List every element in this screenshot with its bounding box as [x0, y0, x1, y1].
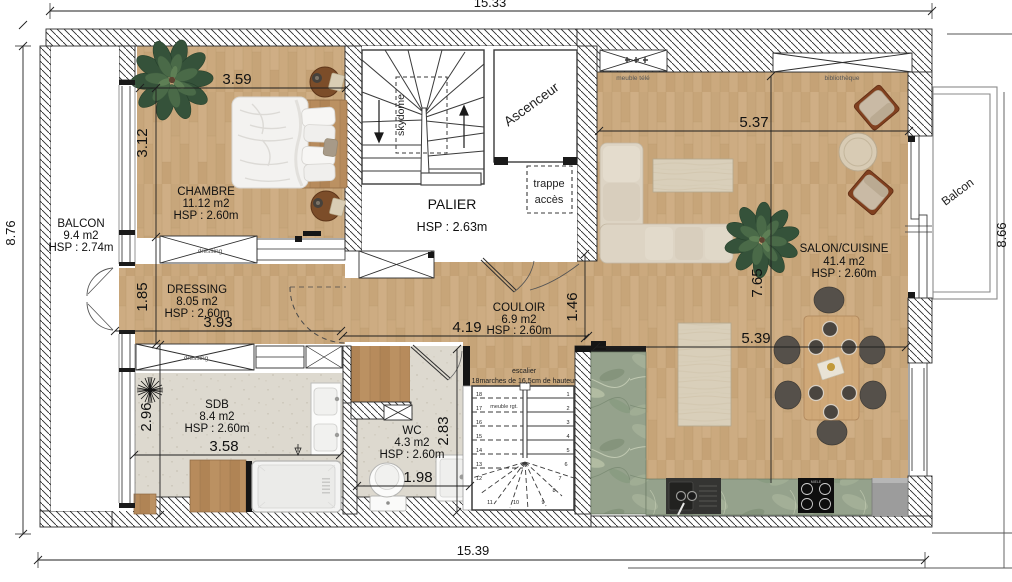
svg-text:15.33: 15.33 — [474, 0, 507, 10]
svg-text:8.66: 8.66 — [994, 222, 1009, 247]
svg-text:11.12 m2: 11.12 m2 — [182, 198, 229, 210]
svg-text:2.96: 2.96 — [138, 402, 155, 431]
svg-text:1: 1 — [566, 392, 569, 398]
svg-text:CHAMBRE: CHAMBRE — [177, 186, 235, 198]
svg-text:meuble rgt.: meuble rgt. — [490, 404, 518, 410]
svg-text:BALCON: BALCON — [57, 218, 104, 230]
svg-text:9.4 m2: 9.4 m2 — [63, 230, 98, 242]
svg-text:12: 12 — [476, 476, 482, 482]
svg-text:3.59: 3.59 — [222, 71, 251, 88]
svg-text:escalier: escalier — [512, 368, 537, 375]
svg-text:15.39: 15.39 — [457, 543, 490, 558]
svg-text:3.58: 3.58 — [209, 438, 238, 455]
svg-text:HSP : 2.60m: HSP : 2.60m — [185, 423, 250, 435]
svg-text:dressing: dressing — [198, 248, 223, 255]
svg-text:10: 10 — [513, 500, 519, 506]
svg-text:accès: accès — [535, 194, 564, 206]
svg-text:HSP : 2.60m: HSP : 2.60m — [165, 308, 230, 320]
svg-text:5.37: 5.37 — [739, 114, 768, 131]
svg-text:15: 15 — [476, 434, 482, 440]
svg-text:8.76: 8.76 — [3, 220, 18, 245]
svg-text:4.3 m2: 4.3 m2 — [394, 437, 429, 449]
svg-text:HSP : 2.60m: HSP : 2.60m — [380, 449, 445, 461]
svg-text:7.65: 7.65 — [749, 268, 766, 297]
svg-text:1.85: 1.85 — [134, 282, 151, 311]
svg-text:dressing: dressing — [184, 355, 209, 362]
svg-text:4.19: 4.19 — [452, 319, 481, 336]
svg-text:9: 9 — [541, 500, 544, 506]
svg-text:3.12: 3.12 — [134, 128, 151, 157]
svg-text:41.4 m2: 41.4 m2 — [823, 256, 865, 268]
svg-text:bibliothèque: bibliothèque — [824, 75, 859, 82]
svg-text:HSP : 2.60m: HSP : 2.60m — [812, 268, 877, 280]
svg-text:18marches de 16,5cm de hauteur: 18marches de 16,5cm de hauteur — [472, 378, 577, 385]
svg-text:6: 6 — [564, 462, 567, 468]
svg-text:8.4 m2: 8.4 m2 — [199, 411, 234, 423]
svg-text:7: 7 — [558, 476, 561, 482]
svg-text:8: 8 — [552, 488, 555, 494]
svg-text:SDB: SDB — [205, 399, 229, 411]
svg-text:14: 14 — [476, 448, 482, 454]
svg-text:2: 2 — [566, 406, 569, 412]
svg-text:skydome: skydome — [395, 94, 407, 136]
svg-text:1.46: 1.46 — [564, 292, 581, 321]
svg-text:5.39: 5.39 — [741, 330, 770, 347]
svg-text:WC: WC — [402, 425, 421, 437]
svg-text:18: 18 — [476, 392, 482, 398]
svg-text:16: 16 — [476, 420, 482, 426]
svg-text:MIELE: MIELE — [811, 480, 822, 484]
svg-text:HSP : 2.74m: HSP : 2.74m — [49, 242, 114, 254]
svg-text:8.05 m2: 8.05 m2 — [176, 296, 218, 308]
svg-text:11: 11 — [487, 500, 493, 506]
svg-text:13: 13 — [476, 462, 482, 468]
svg-text:HSP : 2.63m: HSP : 2.63m — [417, 220, 488, 234]
svg-text:trappe: trappe — [533, 178, 564, 190]
svg-text:HSP : 2.60m: HSP : 2.60m — [174, 210, 239, 222]
svg-text:DRESSING: DRESSING — [167, 284, 227, 296]
svg-text:SALON/CUISINE: SALON/CUISINE — [800, 243, 889, 255]
svg-text:meuble télé: meuble télé — [616, 75, 650, 82]
svg-text:HSP : 2.60m: HSP : 2.60m — [487, 325, 552, 337]
svg-text:5: 5 — [566, 448, 569, 454]
svg-text:4: 4 — [566, 434, 569, 440]
svg-text:PALIER: PALIER — [428, 196, 477, 212]
svg-text:3: 3 — [566, 420, 569, 426]
svg-text:17: 17 — [476, 406, 482, 412]
svg-text:1.98: 1.98 — [403, 469, 432, 486]
svg-text:2.83: 2.83 — [435, 416, 452, 445]
svg-text:COULOIR: COULOIR — [493, 302, 545, 314]
